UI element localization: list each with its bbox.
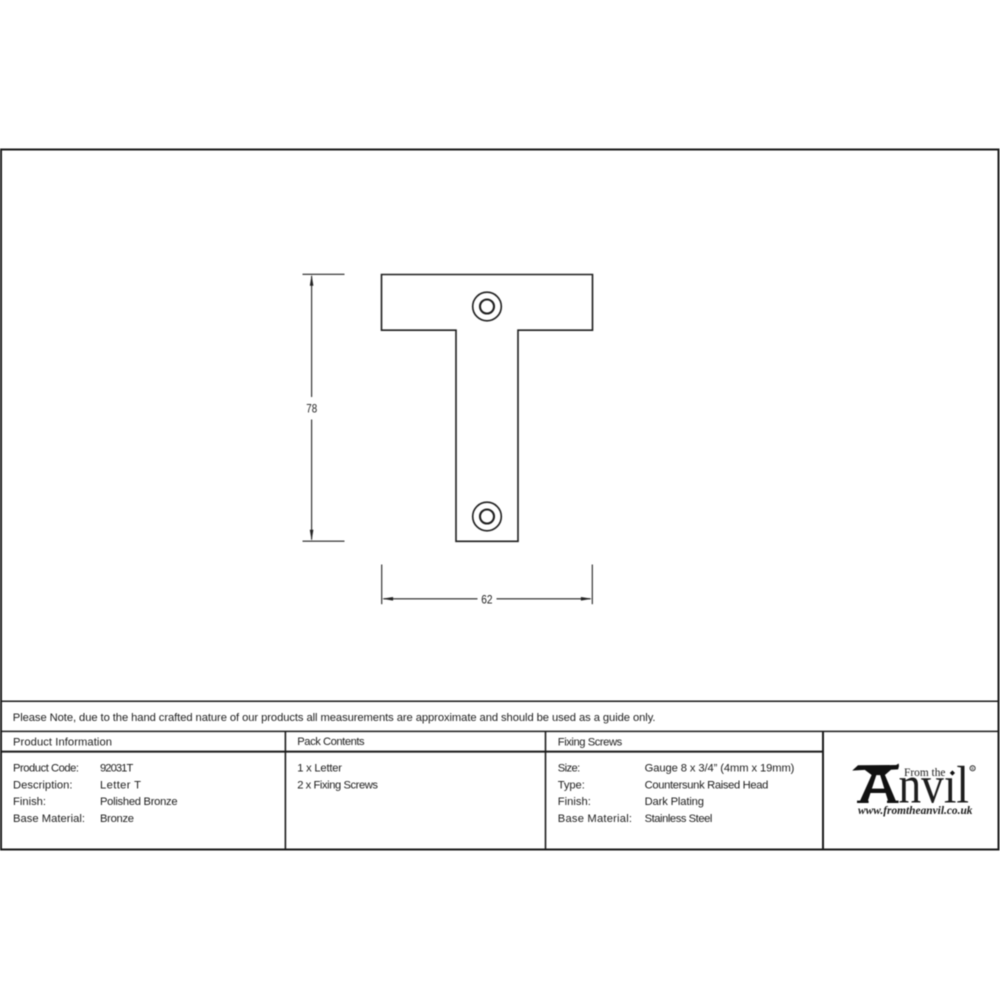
svg-text:1 x Letter: 1 x Letter [297,763,342,775]
svg-text:Type:: Type: [558,780,585,792]
svg-text:Gauge 8 x 3/4” (4mm x 19mm): Gauge 8 x 3/4” (4mm x 19mm) [645,763,795,775]
svg-text:78: 78 [306,403,317,415]
svg-text:Finish:: Finish: [13,796,46,808]
svg-text:92031T: 92031T [100,763,133,775]
svg-text:www.fromtheanvil.co.uk: www.fromtheanvil.co.uk [858,805,973,817]
svg-text:Stainless Steel: Stainless Steel [645,813,713,825]
svg-text:Product Code:: Product Code: [13,763,79,775]
svg-text:Base Material:: Base Material: [558,813,632,825]
svg-text:Polished Bronze: Polished Bronze [100,796,178,808]
svg-text:2 x Fixing Screws: 2 x Fixing Screws [297,780,378,792]
svg-text:Please Note, due to the hand c: Please Note, due to the hand crafted nat… [13,712,656,724]
svg-text:Finish:: Finish: [558,796,591,808]
svg-text:Product Information: Product Information [13,736,112,748]
svg-text:Description:: Description: [13,780,73,792]
svg-text:Countersunk Raised Head: Countersunk Raised Head [645,780,769,792]
svg-text:62: 62 [481,594,492,606]
svg-text:Fixing Screws: Fixing Screws [558,736,623,748]
svg-text:R: R [971,766,974,771]
svg-text:Pack Contents: Pack Contents [297,736,365,748]
svg-text:Dark Plating: Dark Plating [645,796,704,808]
svg-text:Bronze: Bronze [100,813,134,825]
svg-text:Base Material:: Base Material: [13,813,85,825]
svg-text:Size:: Size: [558,763,580,775]
svg-text:Letter T: Letter T [100,780,141,792]
